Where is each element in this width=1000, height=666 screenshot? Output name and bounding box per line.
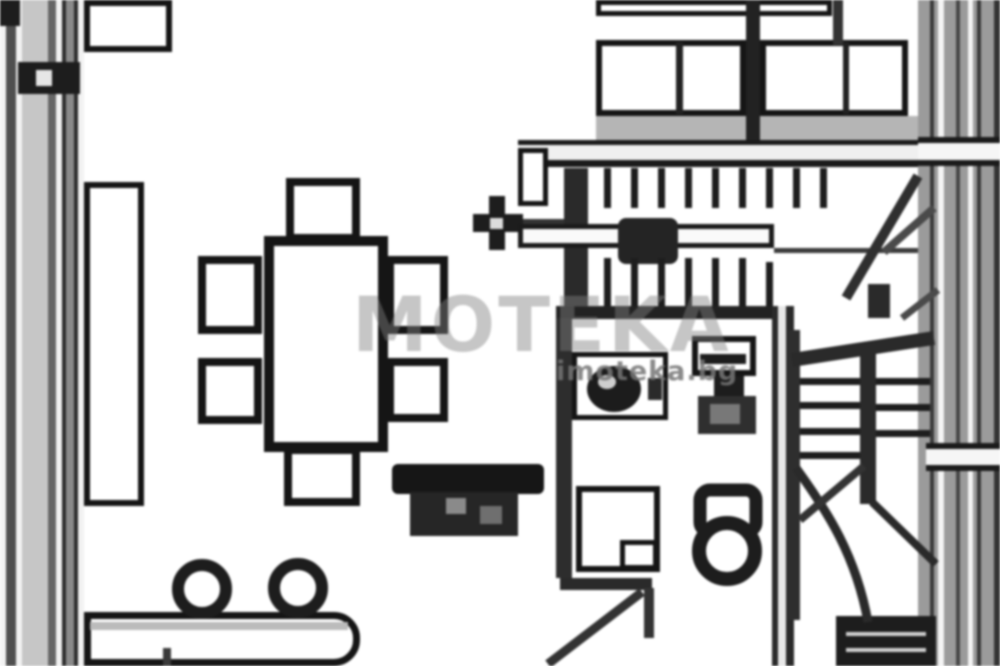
bar-stool [274, 564, 322, 612]
stair-direction-dash [846, 176, 918, 298]
bath-door-swing [548, 592, 642, 664]
watermark-small: imoteka.bg [556, 356, 738, 387]
stair-direction-dash [902, 290, 938, 318]
toilet-bowl [699, 523, 755, 579]
stair2-top-wedge [792, 338, 934, 360]
stair2-cross-diag [872, 502, 936, 564]
plan-layer: MOTEKA imoteka.bg [0, 0, 1000, 666]
floor-plan-image: MOTEKA imoteka.bg [0, 0, 1000, 666]
bar-stool [178, 565, 226, 613]
